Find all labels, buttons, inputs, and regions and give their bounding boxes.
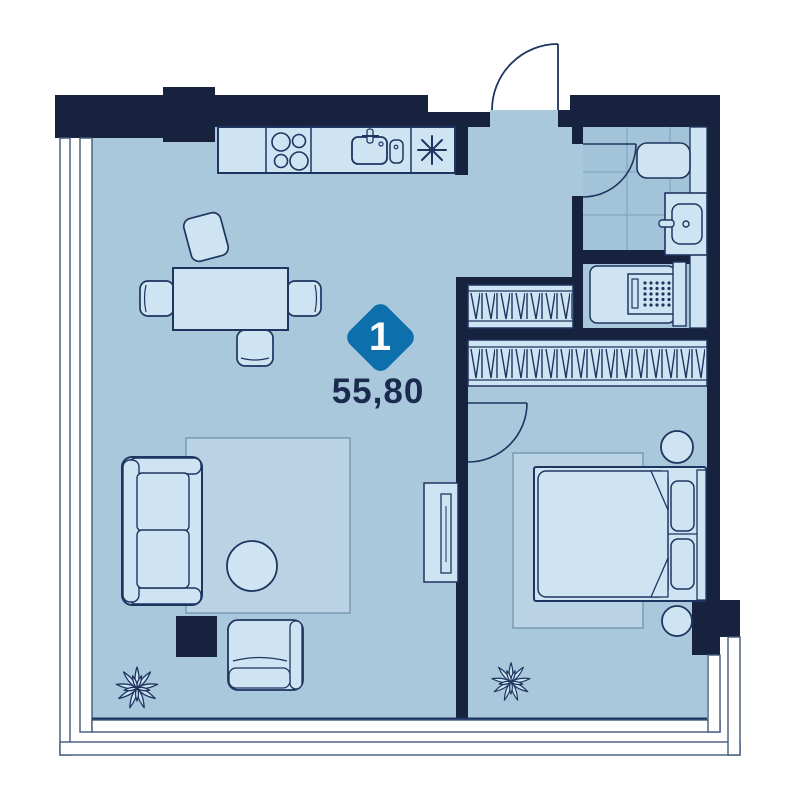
wardrobe-bedroom [468,340,707,386]
unit-area-label: 55,80 [295,372,461,412]
tv-console [424,483,458,582]
wall-right-step-inner [692,637,720,655]
glazing-right-inner [708,655,720,732]
wall-kitchen-stub [455,127,468,175]
wardrobe-hall [468,285,573,328]
bed-headboard [697,470,706,600]
washer-side-panel [673,262,686,326]
nightstand [662,606,692,636]
wall-top-right-low [558,110,720,127]
wardrobe-hatch-icon [469,348,706,379]
sofa [122,457,202,605]
wall-right [707,110,720,600]
laundry-closet [590,262,686,326]
entrance-door-arc [492,44,558,110]
fireplace-block [176,616,217,657]
fridge-asterisk-icon [418,136,446,164]
bed-mattress [538,471,668,597]
sofa-cushion [137,530,189,588]
wall-top-entry-thin [428,112,490,127]
wall-bath-above-door [572,127,583,144]
wall-top-kitchen [215,95,428,127]
toilet-icon [637,143,690,178]
dining-table [173,268,288,330]
wardrobe-hatch-icon [469,292,572,320]
wall-top-right-high [570,95,720,110]
unit-badge-number[interactable]: 1 [340,298,420,378]
wall-top-bump [163,87,215,142]
entrance-door [492,44,558,110]
wall-bath-below-door [572,196,583,250]
armchair [228,620,303,690]
sofa-cushion [137,473,189,531]
glazing-left-inner [80,138,92,732]
wall-wardrobe1-top [456,277,573,285]
glazing-bottom-inner [92,720,720,732]
sofa-armrest-top [129,458,201,474]
glazing-right-outer [728,637,740,755]
wall-right-step-outer [692,600,740,637]
washer-slot [632,279,638,308]
coffee-table [227,541,277,591]
pillow [671,539,694,589]
floorplan: 1 55,80 [0,0,800,800]
bed [534,467,706,601]
wall-top-left [55,95,165,138]
pillow [671,481,694,531]
wall-wardrobe-band [456,328,707,340]
washbasin-icon [659,193,707,255]
living-rug [186,438,350,613]
glazing-left-outer [60,138,70,755]
kitchen-counter [218,127,455,173]
wall-corridor-left-upper [456,278,468,328]
armchair-back [290,621,302,689]
entrance-floor [490,110,558,130]
glazing-bottom-outer [60,742,740,755]
armchair-front [229,668,290,688]
sofa-armrest-bottom [129,588,201,604]
nightstand [661,431,693,463]
unit-badge[interactable]: 1 [340,298,420,378]
